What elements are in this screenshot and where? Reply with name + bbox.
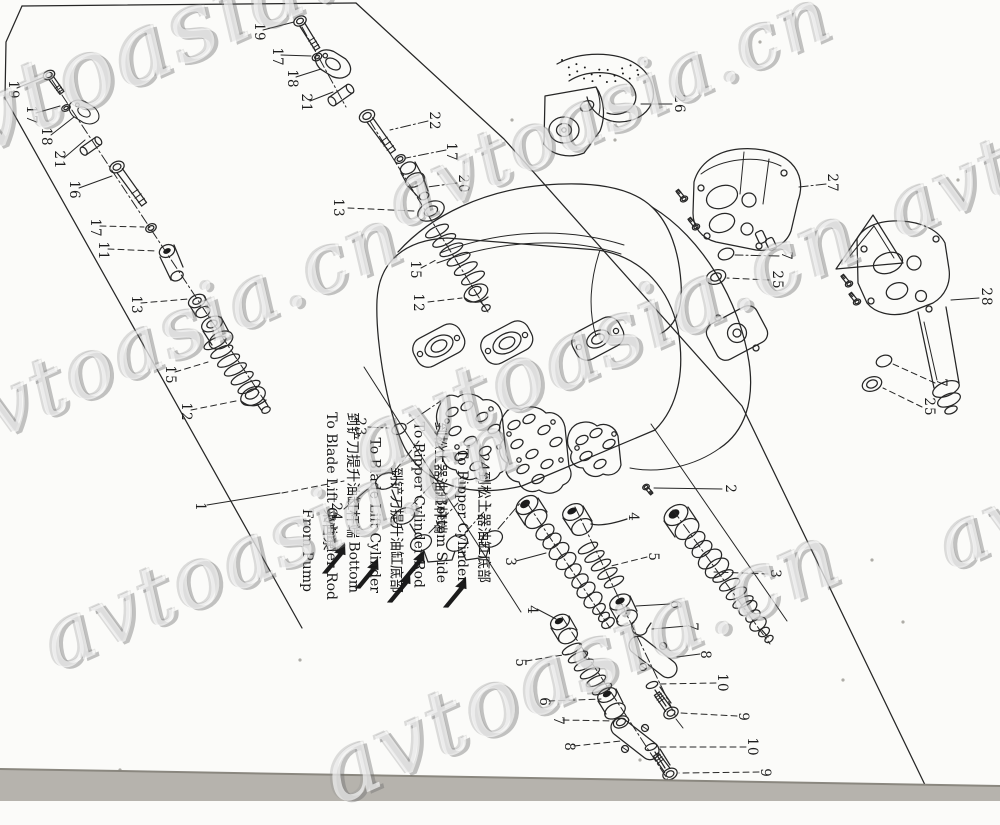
port-label-line: To Ripper Cylinder <box>451 449 472 583</box>
port-label-line: From Pump <box>296 509 317 592</box>
part-number-25: 25 <box>769 270 785 289</box>
part-number-9: 9 <box>735 712 751 722</box>
part-number-3: 3 <box>767 569 783 579</box>
part-number-15: 15 <box>407 260 423 279</box>
port-label-line: To Ripper Cylinder Rod <box>407 422 428 588</box>
right-end-plate <box>703 302 771 364</box>
part-number-12: 12 <box>410 293 426 312</box>
part-number-3: 3 <box>502 557 518 567</box>
part-number-13: 13 <box>330 198 346 217</box>
part-number-7: 7 <box>778 251 794 261</box>
part-number-19: 19 <box>5 80 21 99</box>
part-number-17: 17 <box>87 218 103 237</box>
part-number-22: 22 <box>426 111 442 130</box>
part-number-18: 18 <box>284 69 300 88</box>
part-number-11: 11 <box>95 241 111 260</box>
part-number-21: 21 <box>51 150 67 169</box>
port-label-line: Bottom <box>343 437 364 593</box>
leader-4-curve <box>591 519 627 525</box>
part-number-7: 7 <box>933 378 949 388</box>
part-number-13: 13 <box>128 295 144 314</box>
part-number-15: 15 <box>162 365 178 384</box>
port-label-line: 到铲刀提升油缸底部 <box>385 437 406 593</box>
port-label-line: 24到松土器油缸底部 <box>472 449 493 583</box>
part-number-8: 8 <box>697 650 713 660</box>
part-number-5: 5 <box>645 552 661 562</box>
part-number-7: 7 <box>684 622 700 632</box>
part-number-21: 21 <box>298 93 314 112</box>
part-number-17: 17 <box>269 47 285 66</box>
part-number-6: 6 <box>536 697 552 707</box>
port-label-line: Bottom Side <box>430 449 451 583</box>
part-number-8: 8 <box>561 742 577 752</box>
scan-speckles <box>118 40 959 771</box>
part-number-9: 9 <box>757 768 773 778</box>
port-label-5: 24到松土器油缸底部To Ripper CylinderBottom Side <box>430 449 493 583</box>
part-number-18: 18 <box>38 127 54 146</box>
part-number-19: 19 <box>251 22 267 41</box>
scan-band <box>0 769 1000 801</box>
port-label-line: To Blade Lift Cylinder Rod <box>320 412 341 600</box>
part-27-relief-valve <box>693 149 801 252</box>
part-number-16: 16 <box>66 180 82 199</box>
part-number-4: 4 <box>524 605 540 615</box>
part-number-17: 17 <box>23 105 39 124</box>
part-number-7: 7 <box>550 716 566 726</box>
part-number-6: 6 <box>667 600 683 610</box>
part-number-27: 27 <box>824 173 840 192</box>
part-number-25: 25 <box>921 397 937 416</box>
parts-diagram-artwork <box>0 0 1000 801</box>
part-number-12: 12 <box>178 402 194 421</box>
part-number-5: 5 <box>512 658 528 668</box>
part-number-2: 2 <box>722 484 738 494</box>
part-number-4: 4 <box>625 512 641 522</box>
part-number-17: 17 <box>443 142 459 161</box>
part-number-10: 10 <box>744 737 760 756</box>
part-number-20: 20 <box>455 174 471 193</box>
part-number-1: 1 <box>192 502 208 512</box>
part-number-26: 26 <box>671 94 687 113</box>
part-26-lifting-eye <box>544 54 653 156</box>
part-number-28: 28 <box>978 287 994 306</box>
left-spring-column <box>548 611 663 763</box>
check-valve-chain-right <box>398 160 491 313</box>
port-label-3: 到铲刀提升油缸底部To Blade Lift CylinderBottom <box>343 437 406 593</box>
sheet-border <box>5 3 926 787</box>
scanned-parts-diagram-page: 1917182116171113151219171821221720131512… <box>0 0 1000 801</box>
part-number-10: 10 <box>714 673 730 692</box>
port-label-line: To Blade Lift Cylinder <box>364 437 385 593</box>
generated-details <box>17 14 979 790</box>
